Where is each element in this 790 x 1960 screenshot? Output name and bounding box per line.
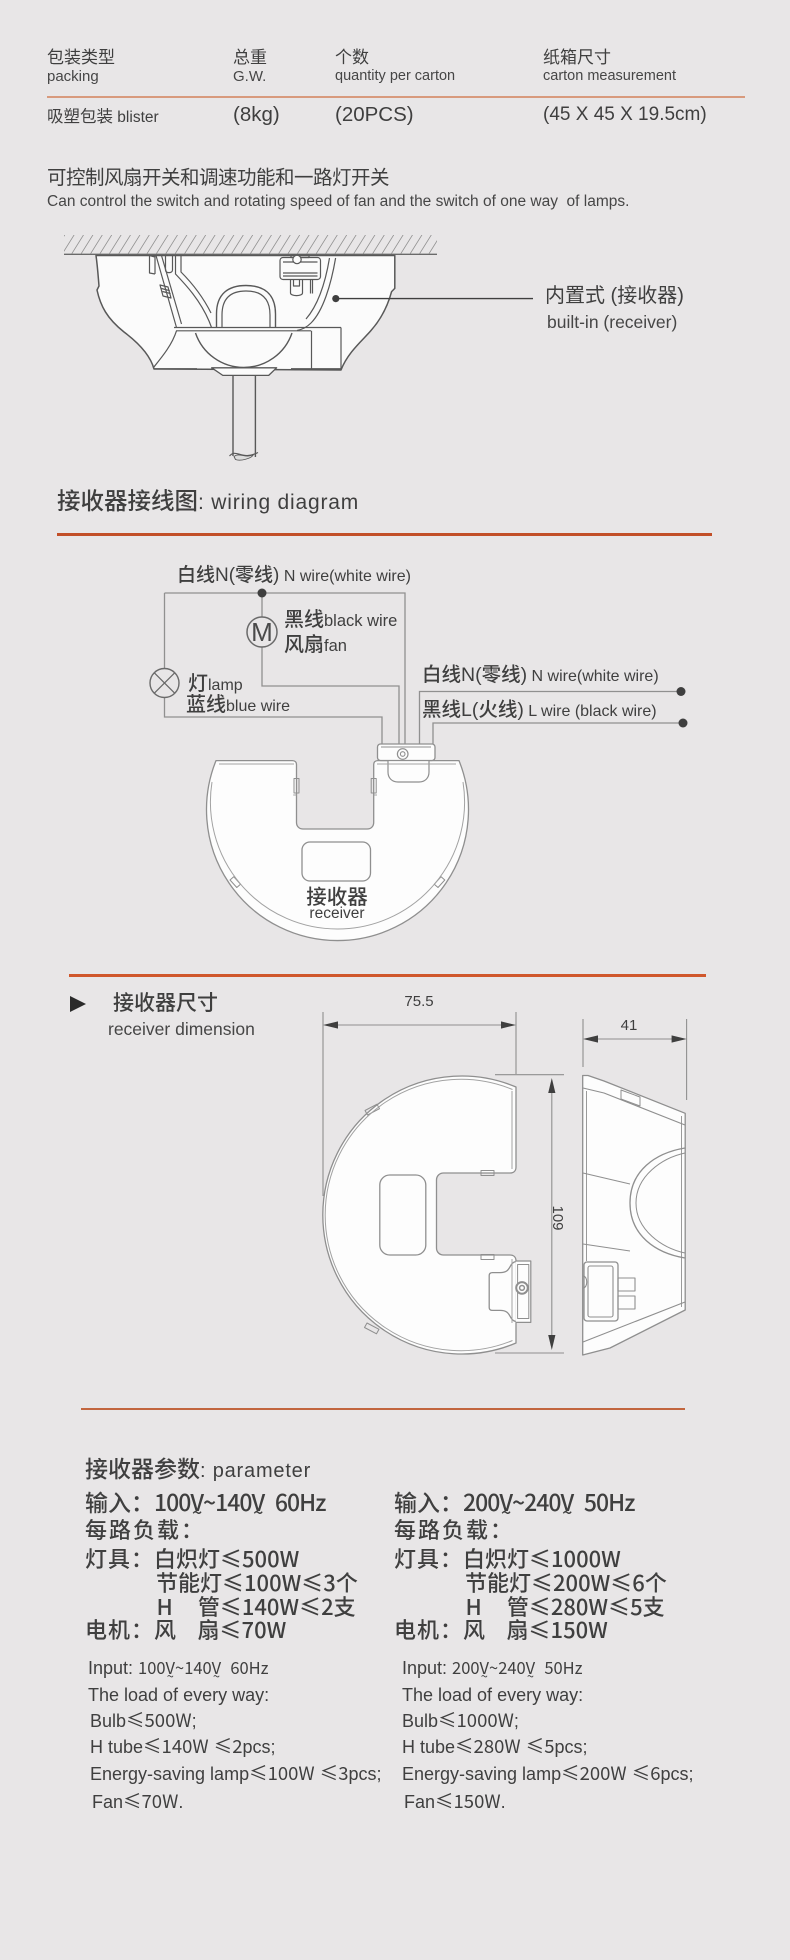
svg-text:75.5: 75.5 [404,993,433,1010]
svg-text:41: 41 [621,1017,638,1034]
svg-text:M: M [251,617,273,647]
svg-text:109: 109 [549,1205,566,1230]
